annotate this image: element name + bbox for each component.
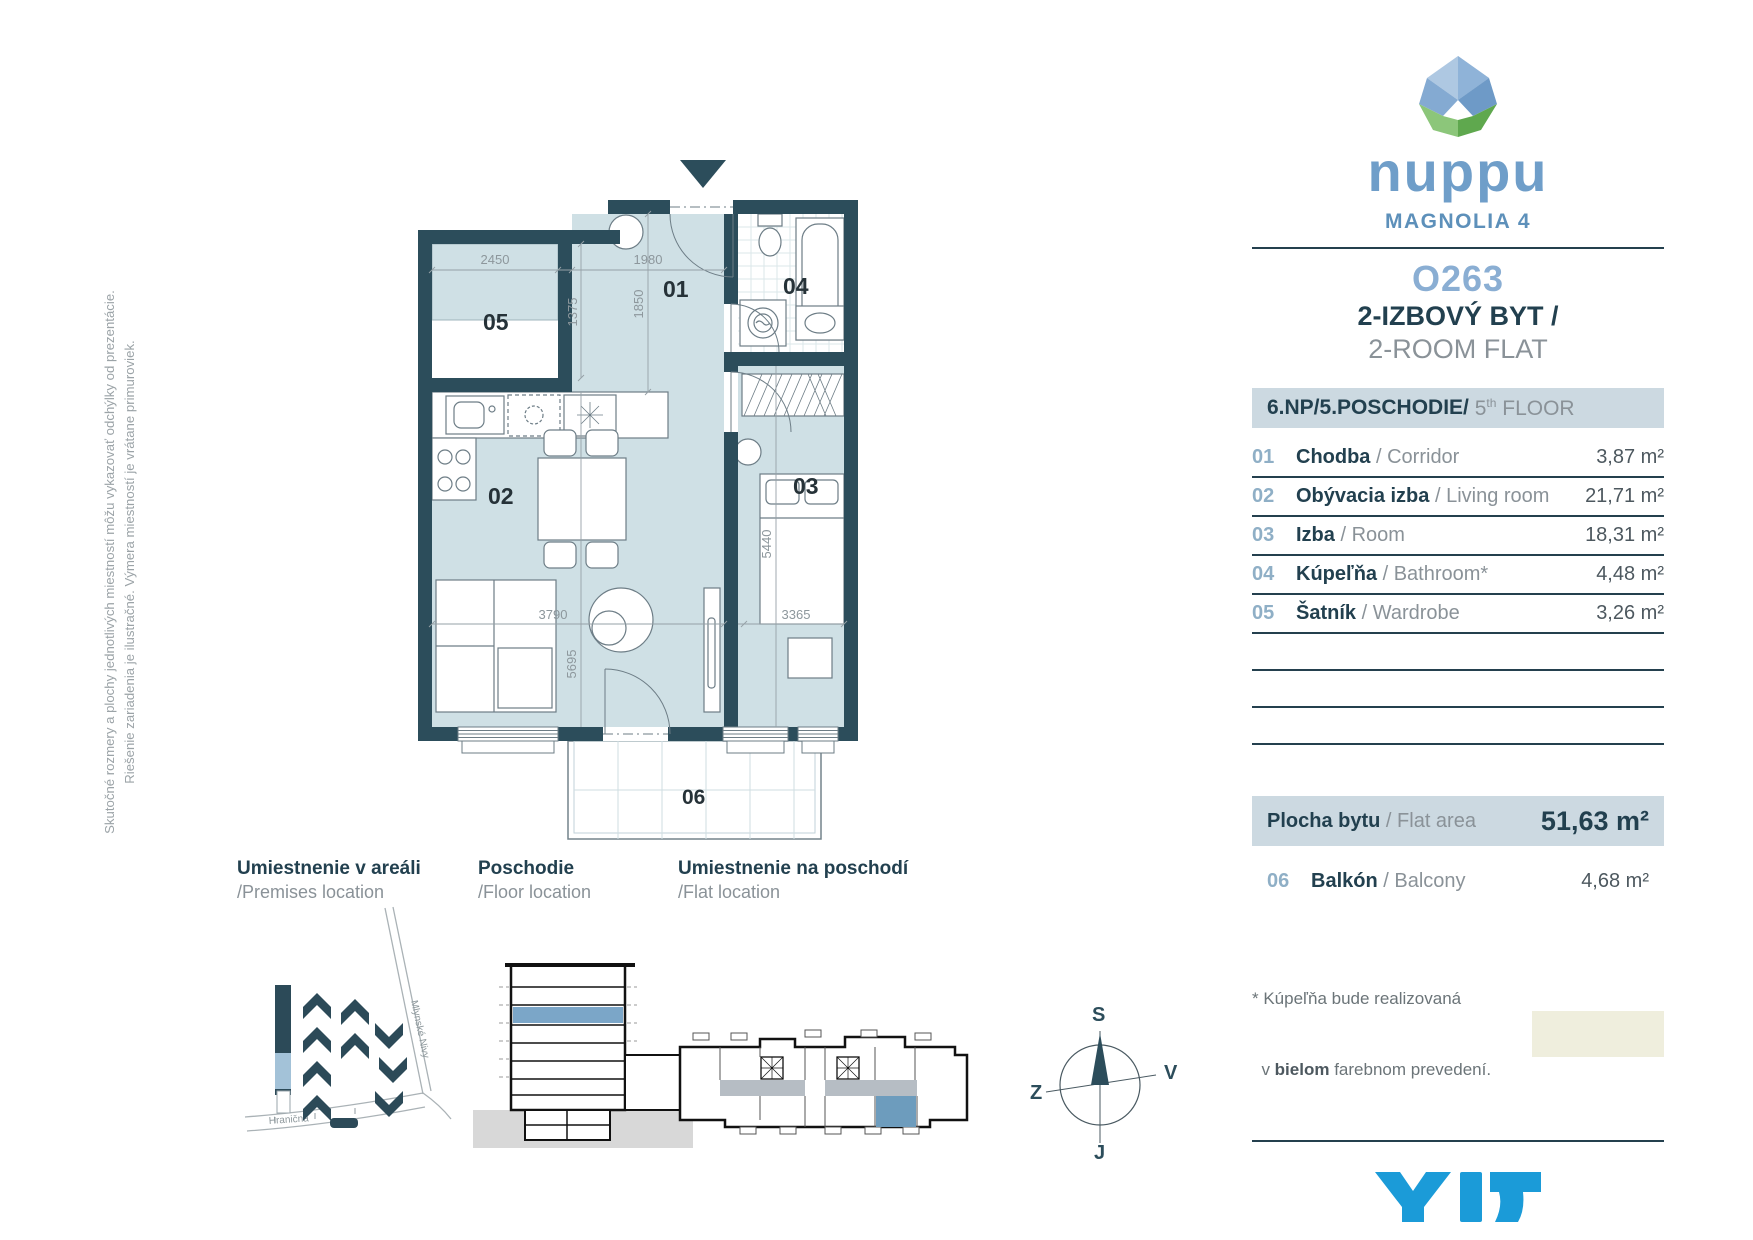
flat-area-bar: Plocha bytu / Flat area 51,63 m² bbox=[1252, 796, 1664, 846]
flat-area-label-en: / Flat area bbox=[1380, 810, 1476, 833]
table-row: 05 Šatník / Wardrobe 3,26 m² bbox=[1252, 595, 1664, 634]
room-name: Kúpeľňa bbox=[1296, 563, 1377, 586]
brand-wordmark: nuppu bbox=[1367, 144, 1548, 200]
chair bbox=[586, 542, 618, 568]
row-number: 03 bbox=[1252, 524, 1296, 547]
row-number: 01 bbox=[1252, 446, 1296, 469]
room-label-01: 01 bbox=[663, 276, 689, 302]
brochure-page: Skutočné rozmery a plochy jednotlivých m… bbox=[0, 0, 1753, 1240]
chair bbox=[586, 430, 618, 456]
flat-code: O263 bbox=[1252, 258, 1664, 300]
premises-location-title: Umiestnenie v areáli bbox=[237, 858, 421, 880]
room-name: Chodba bbox=[1296, 446, 1370, 469]
floor-number: 5 bbox=[1469, 397, 1487, 420]
street-label-mlynske-nivy: Mlynské Nivy bbox=[408, 999, 431, 1059]
header-rule bbox=[1252, 247, 1664, 249]
chair bbox=[544, 542, 576, 568]
compass-west-label: Z bbox=[1030, 1082, 1042, 1104]
room-label-02: 02 bbox=[488, 483, 514, 509]
dim-2450: 2450 bbox=[481, 252, 510, 267]
flat-type-sk: 2-IZBOVÝ BYT / bbox=[1252, 301, 1664, 332]
room-label-06: 06 bbox=[682, 786, 705, 809]
room-name: Izba bbox=[1296, 524, 1335, 547]
table-row: 03 Izba / Room 18,31 m² bbox=[1252, 517, 1664, 556]
table-row: 02 Obývacia izba / Living room 21,71 m² bbox=[1252, 478, 1664, 517]
room-name-en: / Balcony bbox=[1378, 870, 1466, 893]
room-area: 3,26 m² bbox=[1596, 602, 1664, 625]
room-name: Šatník bbox=[1296, 602, 1356, 625]
floor-header-rest: FLOOR bbox=[1496, 397, 1574, 420]
room-name: Obývacia izba bbox=[1296, 485, 1429, 508]
room-label-04: 04 bbox=[783, 273, 809, 299]
flat-location-diagram bbox=[665, 1025, 985, 1155]
compass-north-label: S bbox=[1092, 1004, 1105, 1026]
flat-location-title: Umiestnenie na poschodí bbox=[678, 858, 908, 880]
nuppu-gem-icon bbox=[1415, 54, 1501, 140]
chair bbox=[544, 430, 576, 456]
brand-block: nuppu MAGNOLIA 4 bbox=[1252, 0, 1664, 234]
floor-header-bar: 6.NP/5.POSCHODIE/ 5th FLOOR bbox=[1252, 388, 1664, 428]
empty-row bbox=[1252, 634, 1664, 671]
disclaimer-line-1: Skutočné rozmery a plochy jednotlivých m… bbox=[100, 282, 120, 842]
disclaimer-line-2: Riešenie zariadenia je ilustračné. Výmer… bbox=[120, 282, 140, 842]
flat-type-en: 2-ROOM FLAT bbox=[1252, 334, 1664, 365]
room-label-03: 03 bbox=[793, 473, 819, 499]
dim-3365: 3365 bbox=[782, 607, 811, 622]
premises-location-map: Mlynské Nivy Hraničná bbox=[235, 905, 465, 1155]
flat-area-value: 51,63 m² bbox=[1541, 806, 1649, 837]
room-label-05: 05 bbox=[483, 309, 509, 335]
room-name-en: / Living room bbox=[1429, 485, 1549, 508]
room-area: 4,48 m² bbox=[1596, 563, 1664, 586]
dim-3790: 3790 bbox=[539, 607, 568, 622]
room-name: Balkón bbox=[1311, 870, 1378, 893]
floor-location-diagram bbox=[455, 905, 695, 1155]
footnote-line-1: * Kúpeľňa bude realizovaná bbox=[1252, 987, 1491, 1011]
row-number: 02 bbox=[1252, 485, 1296, 508]
floor-plan: 2450 1980 1375 1850 5440 5695 3790 3365 … bbox=[368, 152, 868, 852]
dim-1980: 1980 bbox=[634, 252, 663, 267]
highlighted-flat bbox=[876, 1096, 916, 1127]
floor-location-subtitle: /Floor location bbox=[478, 882, 591, 903]
room-name-en: / Wardrobe bbox=[1356, 602, 1460, 625]
floor-location-title: Poschodie bbox=[478, 858, 574, 880]
yit-logo bbox=[1373, 1172, 1543, 1222]
dresser bbox=[788, 638, 832, 678]
floor-ordinal: th bbox=[1486, 396, 1496, 410]
room-area: 3,87 m² bbox=[1596, 446, 1664, 469]
row-number: 05 bbox=[1252, 602, 1296, 625]
room-area: 21,71 m² bbox=[1585, 485, 1664, 508]
info-panel: nuppu MAGNOLIA 4 O263 2-IZBOVÝ BYT / 2-R… bbox=[1252, 0, 1664, 1240]
disclaimer-text: Skutočné rozmery a plochy jednotlivých m… bbox=[100, 282, 144, 842]
room-name-en: / Bathroom* bbox=[1377, 563, 1488, 586]
highlighted-floor bbox=[513, 1007, 623, 1023]
compass-south-label: J bbox=[1094, 1142, 1105, 1160]
project-name: MAGNOLIA 4 bbox=[1385, 210, 1531, 234]
table-row: 04 Kúpeľňa / Bathroom* 4,48 m² bbox=[1252, 556, 1664, 595]
dim-5440: 5440 bbox=[759, 530, 774, 559]
row-number: 06 bbox=[1267, 870, 1311, 893]
dim-1375: 1375 bbox=[565, 298, 580, 327]
stove bbox=[432, 438, 476, 500]
room-table: 01 Chodba / Corridor 3,87 m² 02 Obývacia… bbox=[1252, 439, 1664, 745]
toilet bbox=[758, 214, 782, 226]
table-row: 01 Chodba / Corridor 3,87 m² bbox=[1252, 439, 1664, 478]
footer-divider bbox=[1252, 1140, 1664, 1142]
empty-row bbox=[1252, 671, 1664, 708]
room-area: 4,68 m² bbox=[1581, 870, 1649, 893]
row-number: 04 bbox=[1252, 563, 1296, 586]
dim-1850: 1850 bbox=[631, 290, 646, 319]
dim-5695: 5695 bbox=[564, 650, 579, 679]
entrance-arrow-icon bbox=[680, 160, 726, 188]
footnote-line-2: v bielom farebnom prevedení. bbox=[1252, 1058, 1491, 1082]
empty-row bbox=[1252, 708, 1664, 745]
compass-rose: S Z V J bbox=[1030, 995, 1180, 1160]
footnote: * Kúpeľňa bude realizovaná v bielom fare… bbox=[1252, 939, 1664, 1129]
compass-east-label: V bbox=[1164, 1062, 1178, 1084]
premises-location-subtitle: /Premises location bbox=[237, 882, 384, 903]
balcony-row: 06 Balkón / Balcony 4,68 m² bbox=[1252, 865, 1664, 897]
compass-needle bbox=[1091, 1033, 1109, 1085]
dining-table bbox=[538, 458, 626, 540]
flat-location-subtitle: /Flat location bbox=[678, 882, 780, 903]
floor-header-main: 6.NP/5.POSCHODIE/ bbox=[1267, 396, 1469, 420]
flat-area-label: Plocha bytu bbox=[1267, 810, 1380, 833]
bedside-table bbox=[735, 439, 761, 465]
room-name-en: / Room bbox=[1335, 524, 1405, 547]
room-area: 18,31 m² bbox=[1585, 524, 1664, 547]
room-name-en: / Corridor bbox=[1370, 446, 1459, 469]
color-swatch bbox=[1532, 1011, 1664, 1057]
